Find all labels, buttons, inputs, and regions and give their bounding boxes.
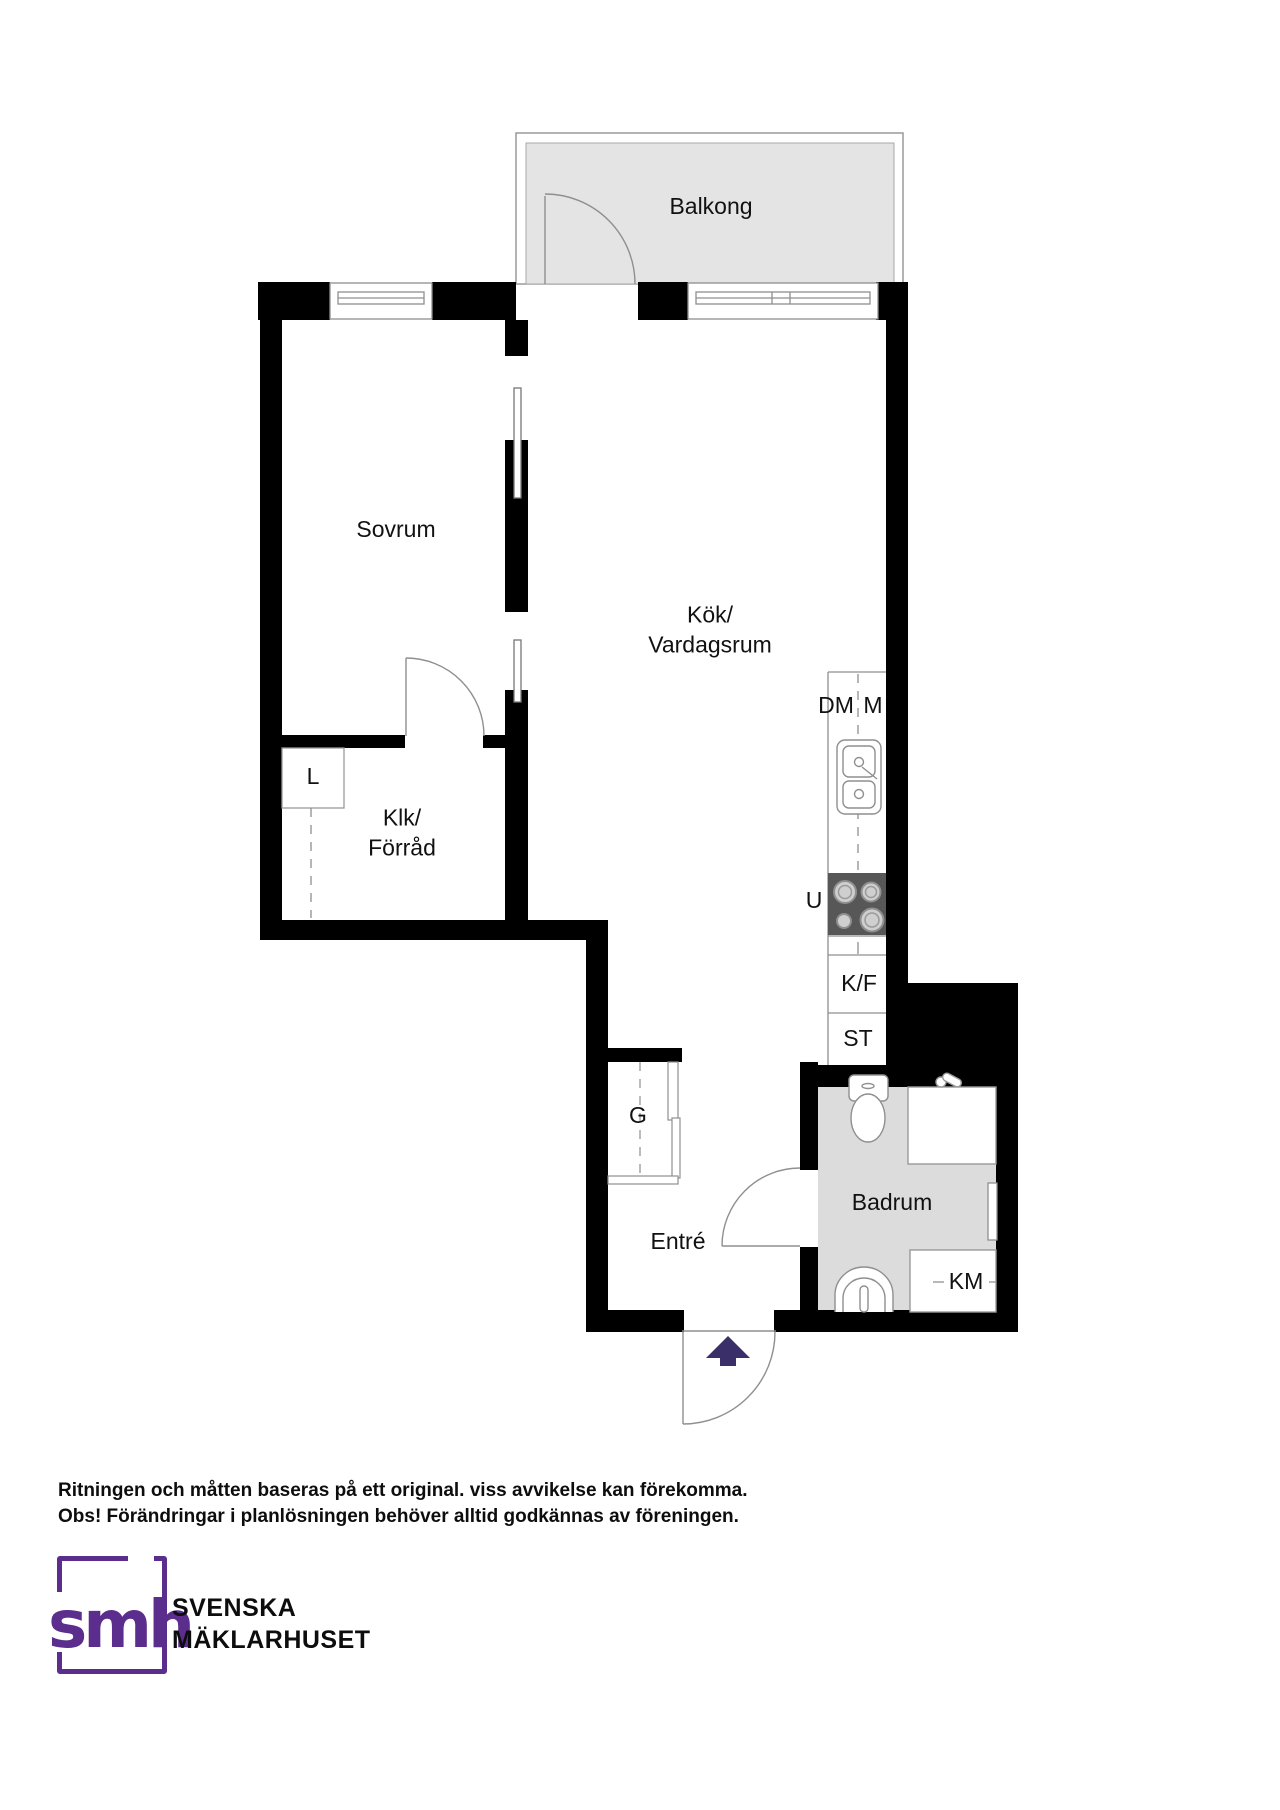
floor-plan-page: Balkong Sovrum Kök/ Vardagsrum Klk/ Förr… bbox=[0, 0, 1280, 1810]
label-wardrobe: G bbox=[629, 1101, 647, 1131]
window-bedroom bbox=[330, 283, 432, 319]
smh-logo: smh bbox=[48, 1586, 191, 1663]
floor-plan-drawing bbox=[0, 0, 1280, 1810]
disclaimer-line-1: Ritningen och måtten baseras på ett orig… bbox=[58, 1478, 748, 1504]
entry-arrow bbox=[706, 1336, 750, 1366]
label-entre: Entré bbox=[651, 1227, 706, 1257]
kitchen-counter bbox=[828, 672, 886, 1065]
window-livingroom bbox=[688, 283, 878, 319]
logo-frame-gap-top bbox=[128, 1550, 154, 1566]
label-klk-forrad: Klk/ Förråd bbox=[368, 803, 436, 864]
disclaimer-line-2: Obs! Förändringar i planlösningen behöve… bbox=[58, 1504, 748, 1530]
brand-name-line-2: MÄKLARHUSET bbox=[172, 1626, 371, 1655]
brand-name-line-1: SVENSKA bbox=[172, 1594, 296, 1623]
kitchen-sink bbox=[837, 740, 881, 814]
label-pantry: ST bbox=[843, 1024, 872, 1054]
label-kok-vardagsrum: Kök/ Vardagsrum bbox=[648, 600, 772, 661]
label-linen-closet: L bbox=[307, 762, 320, 792]
bathroom-door bbox=[722, 1168, 800, 1246]
label-oven: U bbox=[806, 886, 823, 916]
label-washing-machine: KM bbox=[949, 1267, 984, 1297]
disclaimer-text: Ritningen och måtten baseras på ett orig… bbox=[58, 1478, 748, 1530]
towel-rail bbox=[988, 1183, 997, 1240]
label-badrum: Badrum bbox=[852, 1188, 933, 1218]
bedroom-door bbox=[406, 658, 484, 736]
toilet bbox=[849, 1075, 888, 1142]
label-fridge-freezer: K/F bbox=[841, 969, 877, 999]
stove bbox=[828, 873, 886, 935]
label-sovrum: Sovrum bbox=[356, 515, 435, 545]
label-dishwasher: DM bbox=[818, 691, 854, 721]
label-balkong: Balkong bbox=[669, 192, 752, 222]
label-microwave: M bbox=[863, 691, 882, 721]
